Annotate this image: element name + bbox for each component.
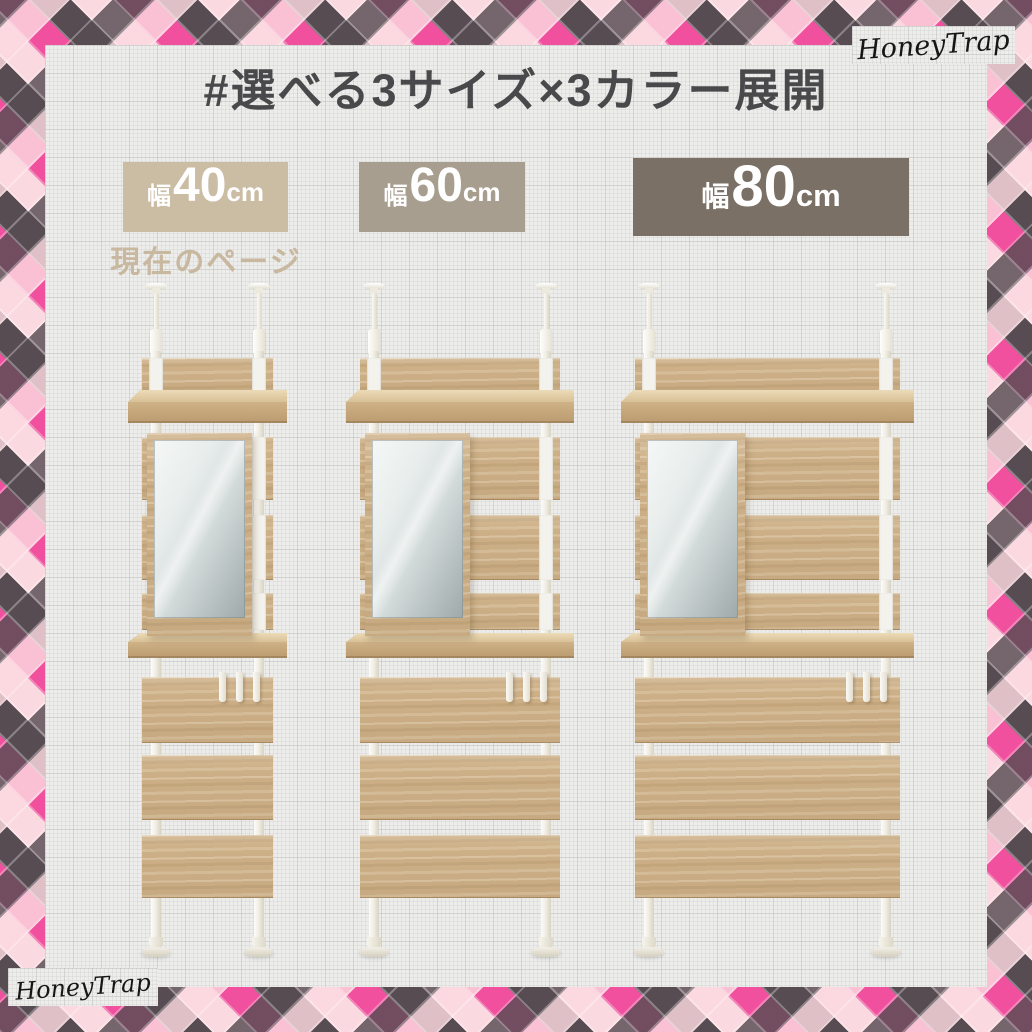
pole-slot <box>879 515 893 580</box>
wall-hook <box>880 672 887 702</box>
product-display-area <box>0 0 1032 1032</box>
pole-slot <box>879 593 893 630</box>
pole-foot <box>244 947 274 957</box>
wood-slat <box>360 755 560 820</box>
wood-slat <box>635 835 900 898</box>
upper-shelf-surface <box>128 390 287 402</box>
pole-slot <box>539 515 553 580</box>
upper-shelf-front <box>128 402 287 423</box>
lower-shelf-front <box>346 642 574 658</box>
pole-slot <box>539 437 553 500</box>
wall-hook <box>523 672 530 702</box>
wood-slat <box>635 755 900 820</box>
pole-slot <box>252 437 266 500</box>
wood-slat <box>360 835 560 898</box>
lower-shelf-front <box>128 642 287 658</box>
pole-foot <box>359 947 389 957</box>
pole-foot <box>531 947 561 957</box>
wall-hook <box>846 672 853 702</box>
pole-slot <box>539 593 553 630</box>
wall-hook <box>540 672 547 702</box>
pole-slot <box>252 593 266 630</box>
wall-hook <box>253 672 260 702</box>
pole-foot <box>871 947 901 957</box>
product-image-60cm <box>360 283 560 961</box>
product-image-40cm <box>142 283 273 961</box>
upper-shelf-front <box>621 402 914 423</box>
lower-shelf-front <box>621 642 914 658</box>
wall-hook <box>236 672 243 702</box>
wood-slat <box>360 677 560 743</box>
wood-slat <box>142 755 273 820</box>
wood-slat <box>635 677 900 743</box>
pole-foot <box>634 947 664 957</box>
wall-hook <box>863 672 870 702</box>
upper-shelf-surface <box>346 390 574 402</box>
mirror <box>154 440 245 618</box>
wall-hook <box>219 672 226 702</box>
upper-shelf-front <box>346 402 574 423</box>
wood-slat <box>142 835 273 898</box>
wall-hook <box>506 672 513 702</box>
mirror <box>647 440 738 618</box>
pole-slot <box>879 437 893 500</box>
pole-foot <box>141 947 171 957</box>
pole-slot <box>252 515 266 580</box>
upper-shelf-surface <box>621 390 914 402</box>
product-image-80cm <box>635 283 900 961</box>
mirror <box>372 440 463 618</box>
